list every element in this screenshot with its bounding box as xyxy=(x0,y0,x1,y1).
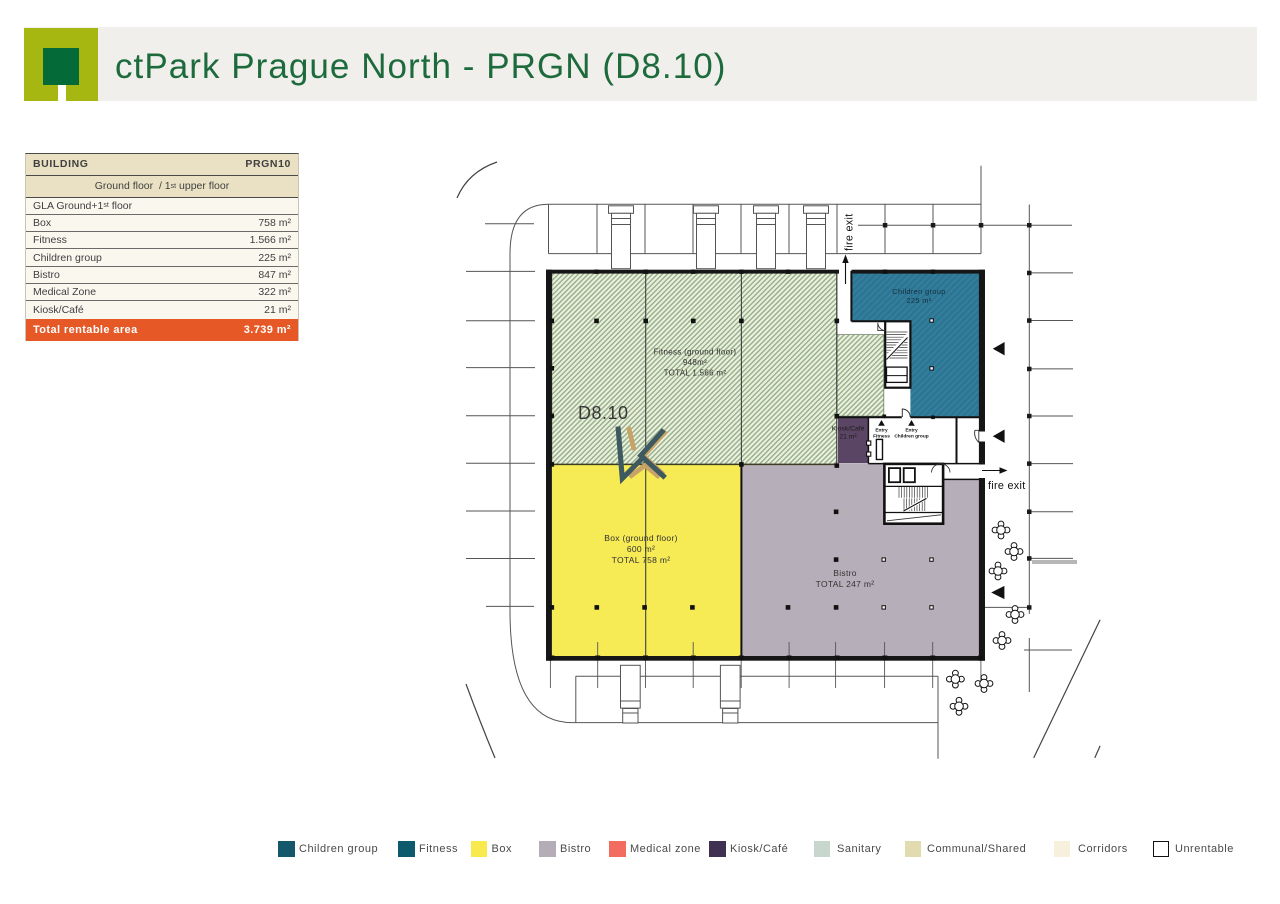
svg-text:Bistro: Bistro xyxy=(833,568,857,578)
svg-text:Kiosk/Café: Kiosk/Café xyxy=(832,426,865,433)
svg-text:948m²: 948m² xyxy=(683,358,707,367)
svg-text:D8.10: D8.10 xyxy=(578,403,629,423)
svg-text:Entry: Entry xyxy=(875,428,888,434)
svg-text:Children group: Children group xyxy=(894,434,928,440)
svg-text:600 m²: 600 m² xyxy=(627,544,655,554)
svg-text:TOTAL 758 m²: TOTAL 758 m² xyxy=(612,555,671,565)
svg-text:fire exit: fire exit xyxy=(844,214,856,252)
svg-text:Children group: Children group xyxy=(892,287,945,296)
svg-text:225 m²: 225 m² xyxy=(906,296,931,305)
svg-text:Entry: Entry xyxy=(905,428,918,434)
svg-text:fire exit: fire exit xyxy=(988,480,1026,492)
svg-text:Fitness: Fitness xyxy=(873,434,890,440)
svg-text:Fitness (ground floor): Fitness (ground floor) xyxy=(654,348,737,357)
svg-text:TOTAL 1.566 m²: TOTAL 1.566 m² xyxy=(664,369,727,378)
svg-text:Box (ground floor): Box (ground floor) xyxy=(604,533,677,543)
svg-text:21 m²: 21 m² xyxy=(839,434,857,441)
svg-text:TOTAL 247 m²: TOTAL 247 m² xyxy=(816,579,875,589)
